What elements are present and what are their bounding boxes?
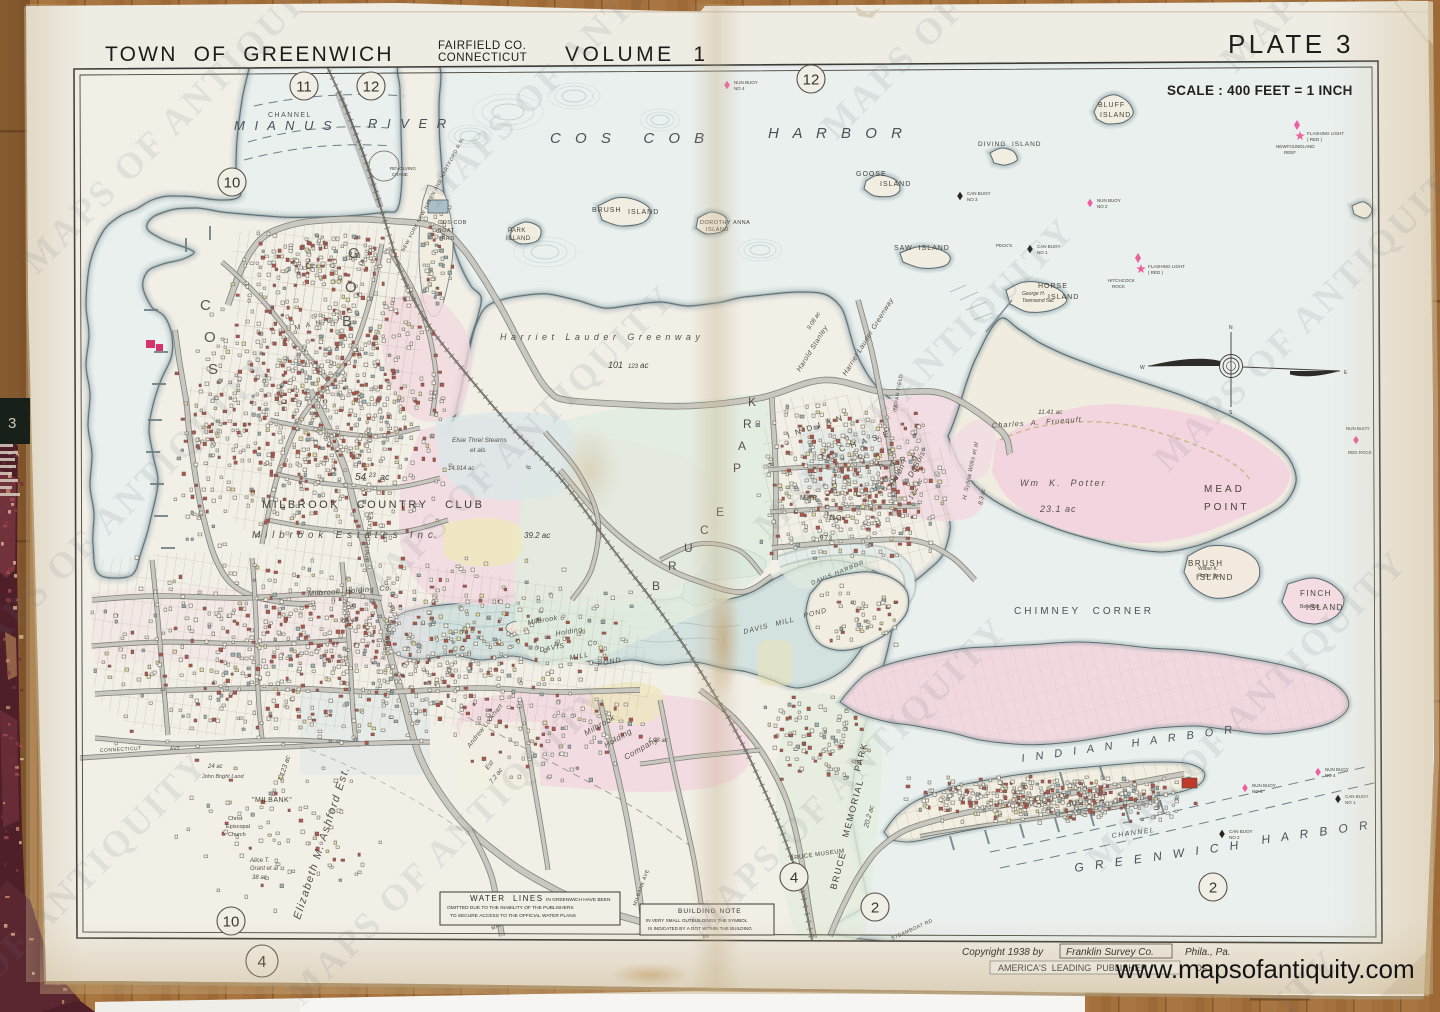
svg-text:2: 2: [1209, 879, 1217, 896]
svg-text:ISLAND: ISLAND: [506, 236, 531, 242]
svg-text:"MILBANK": "MILBANK": [252, 797, 292, 804]
svg-text:POINT: POINT: [1204, 502, 1250, 513]
svg-text:CAN BUOY: CAN BUOY: [1229, 829, 1253, 834]
svg-text:Alice T.: Alice T.: [249, 858, 270, 864]
svg-text:PECK'S: PECK'S: [996, 243, 1012, 248]
svg-text:9.3 ac: 9.3 ac: [340, 617, 358, 624]
svg-text:BLUFF: BLUFF: [1098, 102, 1125, 109]
svg-text:FINCH: FINCH: [1300, 589, 1332, 598]
svg-text:CHANNEL: CHANNEL: [268, 112, 312, 119]
svg-text:PARK: PARK: [508, 228, 526, 234]
svg-text:W: W: [1140, 365, 1145, 371]
svg-text:ac: ac: [640, 361, 648, 370]
svg-text:C O S C O B: C O S C O B: [550, 130, 709, 147]
svg-text:ISLAND: ISLAND: [880, 181, 911, 188]
svg-text:HITCHCOCK: HITCHCOCK: [1108, 278, 1135, 283]
svg-text:FLASHING LIGHT: FLASHING LIGHT: [1148, 264, 1185, 269]
svg-text:WATER LINES: WATER LINES: [470, 894, 544, 903]
svg-text:REVOLVING: REVOLVING: [390, 166, 416, 171]
svg-text:1.98 ac: 1.98 ac: [648, 738, 668, 744]
svg-text:FAIRFIELD CO.: FAIRFIELD CO.: [438, 40, 526, 52]
svg-text:2: 2: [871, 899, 879, 916]
svg-text:K: K: [748, 395, 756, 409]
svg-text:DIVING ISLAND: DIVING ISLAND: [978, 141, 1041, 148]
svg-text:R: R: [668, 559, 677, 573]
svg-text:NUN BUOY: NUN BUOY: [1252, 783, 1276, 788]
svg-text:Church: Church: [228, 832, 246, 838]
svg-text:Benedict: Benedict: [1300, 604, 1320, 610]
svg-text:23: 23: [368, 473, 376, 479]
svg-text:Townsend 5ac: Townsend 5ac: [1022, 298, 1055, 304]
svg-text:MEAD: MEAD: [1204, 484, 1245, 495]
svg-text:SAW ISLAND: SAW ISLAND: [894, 245, 950, 252]
svg-text:CAN BUOY: CAN BUOY: [967, 191, 991, 196]
svg-text:REEF: REEF: [1284, 150, 1296, 155]
svg-text:NO: NO: [830, 515, 843, 522]
svg-text:M I A N U S: M I A N U S: [234, 118, 335, 133]
svg-text:Copyright 1938 by: Copyright 1938 by: [962, 947, 1044, 958]
svg-text:ROCK: ROCK: [1112, 284, 1125, 289]
svg-text:ISLAND: ISLAND: [1100, 112, 1131, 119]
svg-text:11: 11: [296, 78, 312, 95]
svg-text:54: 54: [355, 472, 367, 483]
svg-text:12: 12: [803, 71, 820, 88]
svg-text:NO 2: NO 2: [1097, 204, 1108, 209]
svg-text:4: 4: [790, 869, 798, 886]
svg-text:12: 12: [363, 78, 380, 95]
svg-text:Episcopal: Episcopal: [226, 824, 250, 830]
svg-text:B: B: [652, 579, 660, 593]
svg-text:23.1 ac: 23.1 ac: [1039, 504, 1077, 514]
svg-text:www.mapsofantiquity.com: www.mapsofantiquity.com: [1115, 954, 1415, 984]
svg-text:Grant et al: Grant et al: [250, 866, 279, 872]
svg-text:CHIMNEY CORNER: CHIMNEY CORNER: [1014, 606, 1154, 617]
svg-text:123: 123: [628, 364, 639, 370]
svg-text:COS COB: COS COB: [438, 220, 467, 226]
svg-text:39.2 ac: 39.2 ac: [524, 531, 550, 540]
svg-text:S: S: [208, 361, 218, 378]
svg-text:BRUSH: BRUSH: [592, 207, 622, 214]
svg-text:NO 2: NO 2: [1229, 835, 1240, 840]
svg-text:ac: ac: [380, 472, 390, 482]
svg-text:C: C: [348, 245, 359, 262]
svg-text:Christ: Christ: [228, 816, 243, 822]
svg-text:CRANE: CRANE: [392, 172, 408, 177]
svg-text:N: N: [1229, 325, 1233, 331]
svg-text:NO 3: NO 3: [967, 197, 978, 202]
svg-text:O: O: [345, 279, 357, 296]
svg-text:GOOSE: GOOSE: [856, 171, 887, 178]
svg-text:BOAT: BOAT: [438, 228, 455, 234]
svg-text:Potter 6ac: Potter 6ac: [1198, 573, 1221, 579]
svg-text:Wilbur K.: Wilbur K.: [1198, 566, 1218, 572]
svg-text:TO SECURE ACCESS TO THE OFFICI: TO SECURE ACCESS TO THE OFFICIAL WATER P…: [450, 913, 576, 919]
svg-text:Wm K. Potter: Wm K. Potter: [1020, 478, 1107, 488]
svg-text:NEWFOUNDLAND: NEWFOUNDLAND: [1276, 144, 1315, 149]
svg-text:C: C: [200, 297, 211, 314]
svg-text:38 ac: 38 ac: [252, 875, 267, 881]
svg-text:( RED ): ( RED ): [1307, 137, 1323, 142]
svg-text:R: R: [743, 417, 752, 431]
svg-text:( RED ): ( RED ): [1148, 270, 1164, 275]
svg-text:R I V E R: R I V E R: [368, 116, 449, 131]
svg-text:SCALE : 400 FEET = 1 INCH: SCALE : 400 FEET = 1 INCH: [1167, 83, 1353, 98]
svg-text:973: 973: [820, 536, 833, 542]
svg-text:CONNECTICUT: CONNECTICUT: [438, 52, 527, 64]
svg-text:NO 6: NO 6: [1252, 789, 1263, 794]
svg-text:OMITTED DUE TO THE INABILITY O: OMITTED DUE TO THE INABILITY OF THE PUBL…: [447, 905, 574, 911]
svg-text:3: 3: [8, 415, 16, 432]
svg-text:11.41 ac: 11.41 ac: [1038, 409, 1063, 416]
svg-text:O: O: [204, 329, 216, 346]
svg-text:10: 10: [224, 174, 241, 191]
svg-text:ISLAND: ISLAND: [628, 209, 659, 216]
svg-text:YARD: YARD: [438, 236, 455, 242]
svg-text:NUN BUOY: NUN BUOY: [1097, 198, 1121, 203]
svg-text:IN GREENWICH HAVE BEEN: IN GREENWICH HAVE BEEN: [546, 897, 611, 903]
svg-text:HORSE: HORSE: [1038, 283, 1068, 290]
